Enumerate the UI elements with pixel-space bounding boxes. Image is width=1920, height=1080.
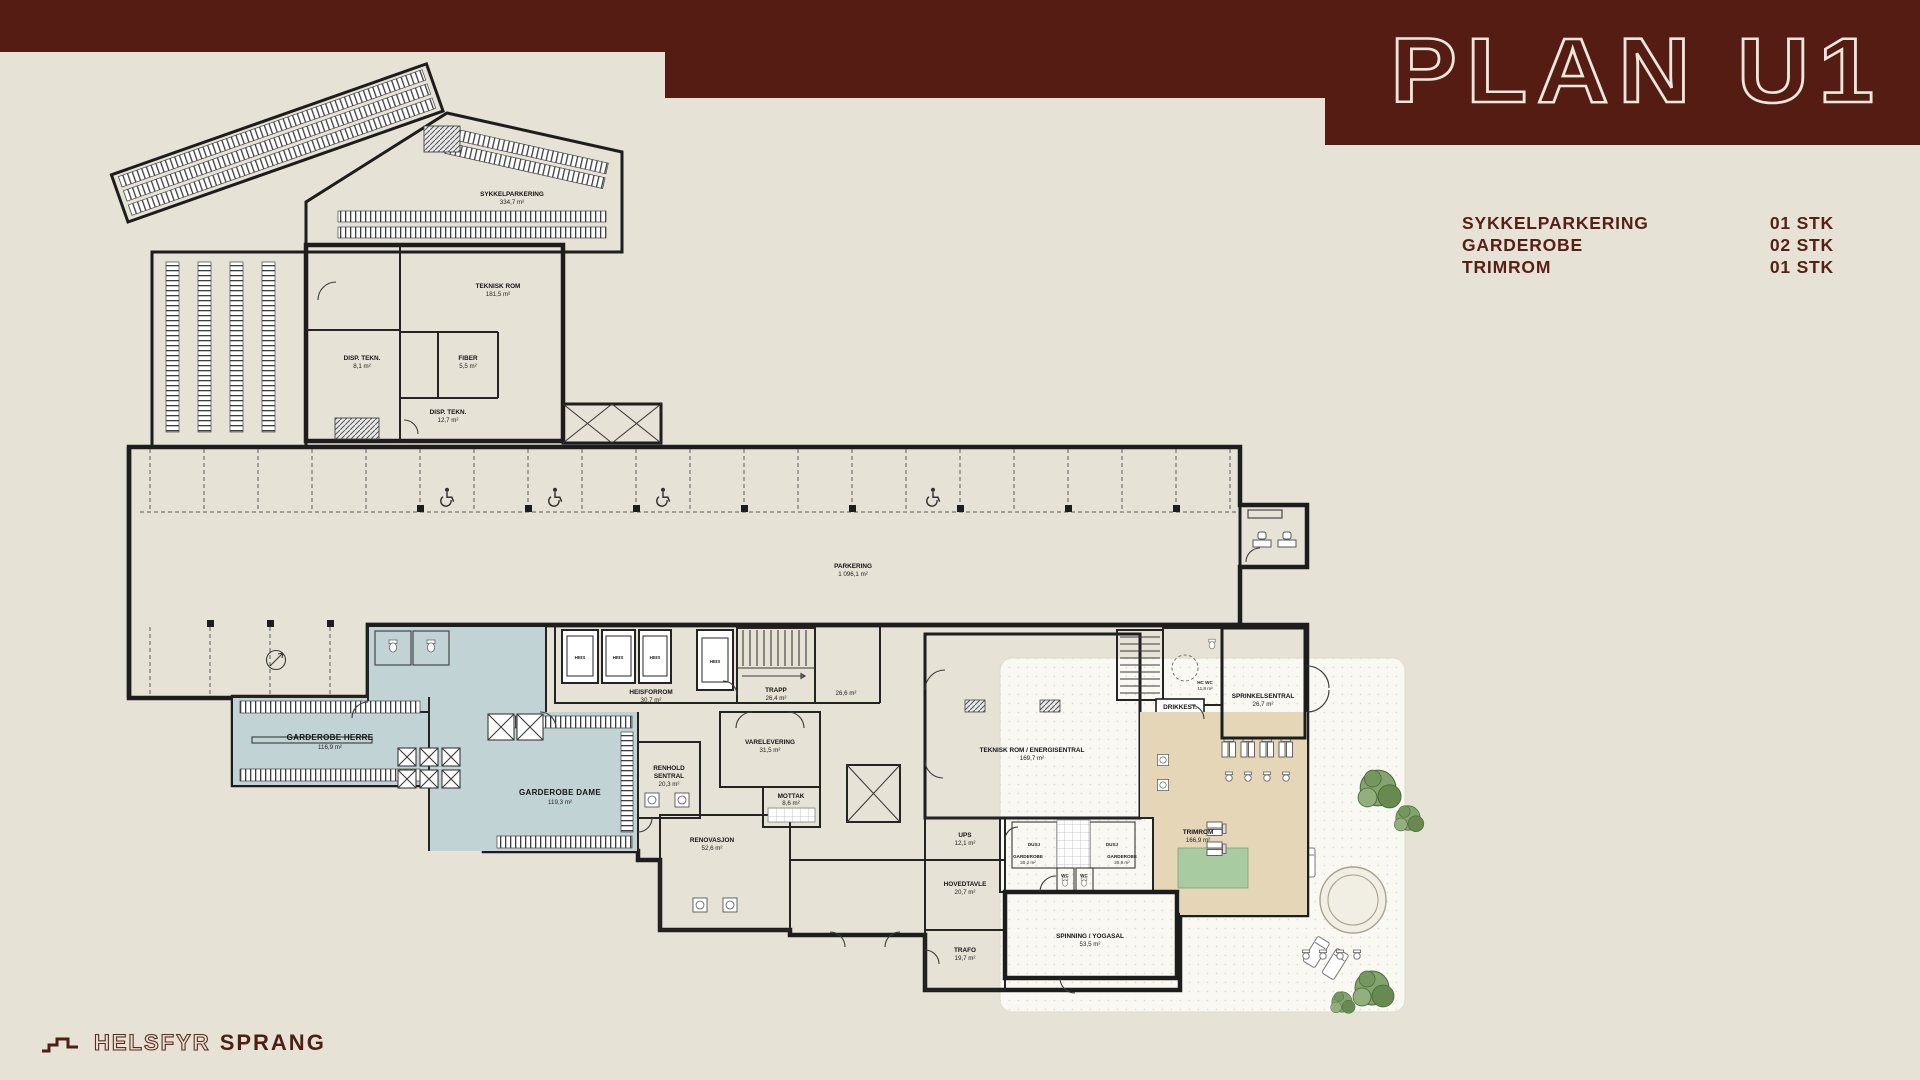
room-area: 20,7 m² [955,889,976,896]
parking-stalls [140,449,1236,512]
room-label: GARDEROBE [1107,854,1137,859]
room-area: 5,5 m² [459,363,477,370]
stair-hatch [424,126,460,152]
room-label: HEIS [710,659,721,664]
room-area: 119,3 m² [548,799,572,806]
room-area: 11,8 m² [1197,686,1213,691]
bicycle-parking-wing: SYKKELPARKERING 334,7 m² [111,64,622,447]
room-area: 334,7 m² [500,199,524,206]
logo-steps-icon [40,1030,82,1056]
floor-plan-svg: PARKERING 1 096,1 m² SYKKELPARKERING [0,0,1920,1080]
room-label: SENTRAL [654,773,684,780]
room-area: 116,9 m² [318,744,342,751]
central-shaft [847,765,900,822]
room-area: 12,1 m² [955,840,976,847]
brand-name-outline: HELSFYR [94,1030,211,1056]
room-area: 20,3 m² [659,781,680,788]
teknisk-rom-block: DISP. TEKN. 8,1 m² FIBER 5,5 m² DISP. TE… [306,245,661,443]
room-label: TEKNISK ROM / ENERGISENTRAL [980,747,1085,754]
room-label: DUSJ [1028,842,1041,847]
room-area: 52,6 m² [702,845,723,852]
elevator-block: HEIS HEIS HEIS HEIS HEISFORROM 30,7 m² T… [555,625,880,704]
bike-racks-top [445,128,609,189]
room-area: 26,7 m² [1253,701,1274,708]
room-area: 181,5 m² [486,291,510,298]
room-label: UPS [958,832,972,839]
shaft-hatch [335,418,379,439]
room-label: VARELEVERING [745,739,795,746]
room-area: 30,7 m² [641,697,662,704]
bike-rack-columns [152,252,306,447]
trimrom-zone: TRIMROM 166,9 m² [1140,712,1307,915]
room-area: 8,6 m² [782,800,800,807]
room-label: TRIMROM [1183,829,1214,836]
room-label: GARDEROBE DAME [519,788,601,797]
room-area: 166,9 m² [1186,837,1210,844]
room-label: HOVEDTAVLE [944,881,987,888]
room-label: DISP. TEKN. [344,355,381,362]
room-label: HC WC [1197,680,1213,685]
room-area: 26,6 m² [836,690,857,697]
room-label: TEKNISK ROM [476,283,521,290]
bike-rack-arm [111,64,443,222]
room-label: RENOVASJON [690,837,735,844]
room-label: TRAPP [765,687,787,694]
parking-stalls-lower [150,620,334,694]
room-area: 8,1 m² [353,363,371,370]
drikkest-box: DRIKKEST. [1156,699,1204,713]
room-label: HEIS [650,655,661,660]
room-label: GARDEROBE HERRE [287,733,374,742]
room-area: 12,7 m² [438,417,459,424]
room-label: DISP. TEKN. [430,409,467,416]
round-pool [1320,867,1386,933]
room-area: 26,4 m² [766,695,787,702]
room-label: FIBER [458,355,478,362]
parking-office-room [1240,505,1307,567]
room-area: 31,5 m² [760,747,781,754]
room-area: 19,7 m² [955,955,976,962]
room-area: 169,7 m² [1020,755,1044,762]
room-label: GARDEROBE [1013,854,1043,859]
delivery-rooms: RENOVASJON 52,6 m² VARELEVERING 31,5 m² … [660,712,820,930]
renhold-room: RENHOLD SENTRAL 20,3 m² [638,742,700,818]
room-label: DUSJ [1106,842,1119,847]
room-label: SPRINKELSENTRAL [1232,693,1295,700]
room-area: 20,9 m² [1114,860,1130,865]
brand-name-solid: SPRANG [220,1030,326,1056]
room-label: WC [1080,873,1088,878]
room-label: HEIS [575,655,586,660]
room-area: 20,2 m² [1020,860,1036,865]
technical-stack: UPS 12,1 m² HOVEDTAVLE 20,7 m² TRAFO 19,… [925,818,1005,990]
room-label: SYKKELPARKERING [480,191,544,198]
room-label: MOTTAK [778,793,805,800]
room-area: 1 096,1 m² [838,571,868,578]
room-label: SPINNING / YOGASAL [1056,933,1124,940]
cross-shaft [563,404,661,443]
room-label: WC [1061,873,1069,878]
room-label: TRAFO [954,947,976,954]
room-label: RENHOLD [653,765,685,772]
room-label: PARKERING [834,563,872,570]
room-area: 53,5 m² [1080,941,1101,948]
room-label: HEIS [613,655,624,660]
brand-logo: HELSFYR SPRANG [40,1030,326,1056]
room-label: HEISFORROM [629,689,672,696]
